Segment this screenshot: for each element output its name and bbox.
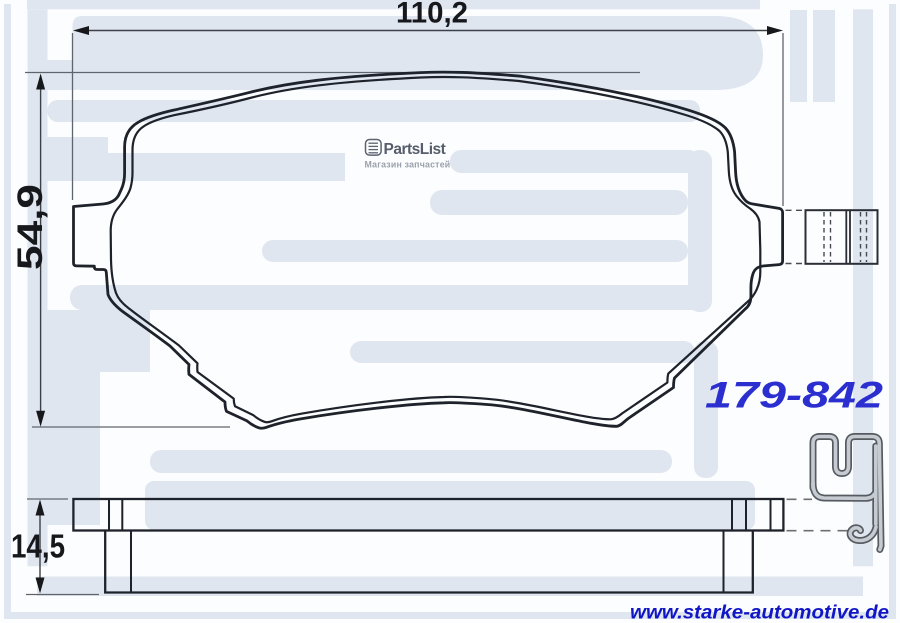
svg-text:Магазин запчастей: Магазин запчастей: [365, 160, 451, 170]
svg-text:14,5: 14,5: [11, 528, 65, 565]
svg-text:PartsList: PartsList: [384, 141, 446, 158]
svg-text:110,2: 110,2: [396, 0, 468, 30]
svg-text:179-842: 179-842: [705, 375, 884, 416]
svg-text:54,9: 54,9: [11, 184, 50, 270]
svg-text:www.starke-automotive.de: www.starke-automotive.de: [630, 602, 889, 623]
